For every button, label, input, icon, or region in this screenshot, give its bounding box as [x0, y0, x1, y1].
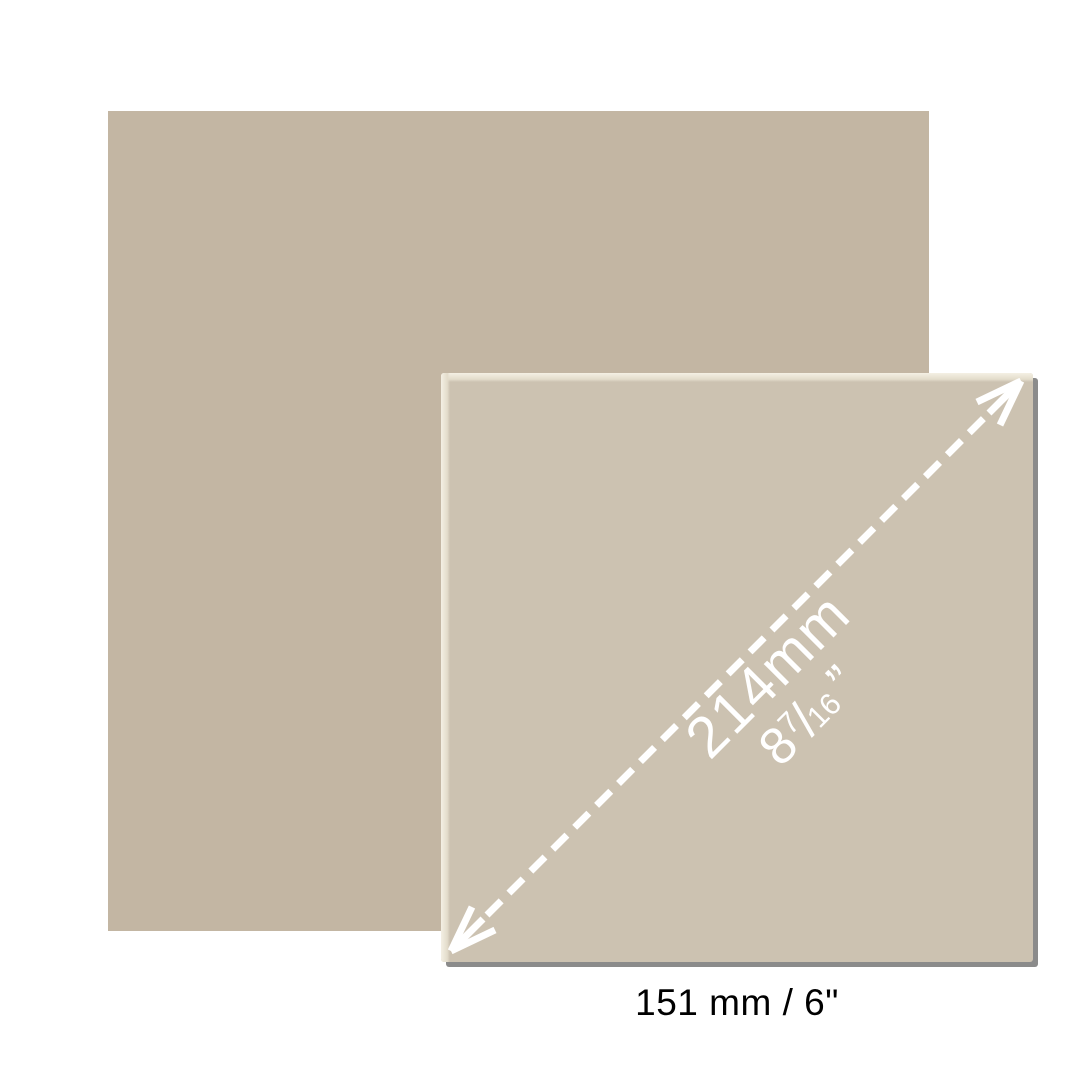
tile-swatch: 214mm 87/16”	[441, 373, 1033, 962]
tile-size-caption: 151 mm / 6"	[441, 982, 1033, 1024]
product-dimension-image: 214mm 87/16” 151 mm / 6"	[0, 0, 1080, 1080]
arrowhead-top-right	[977, 381, 1021, 425]
